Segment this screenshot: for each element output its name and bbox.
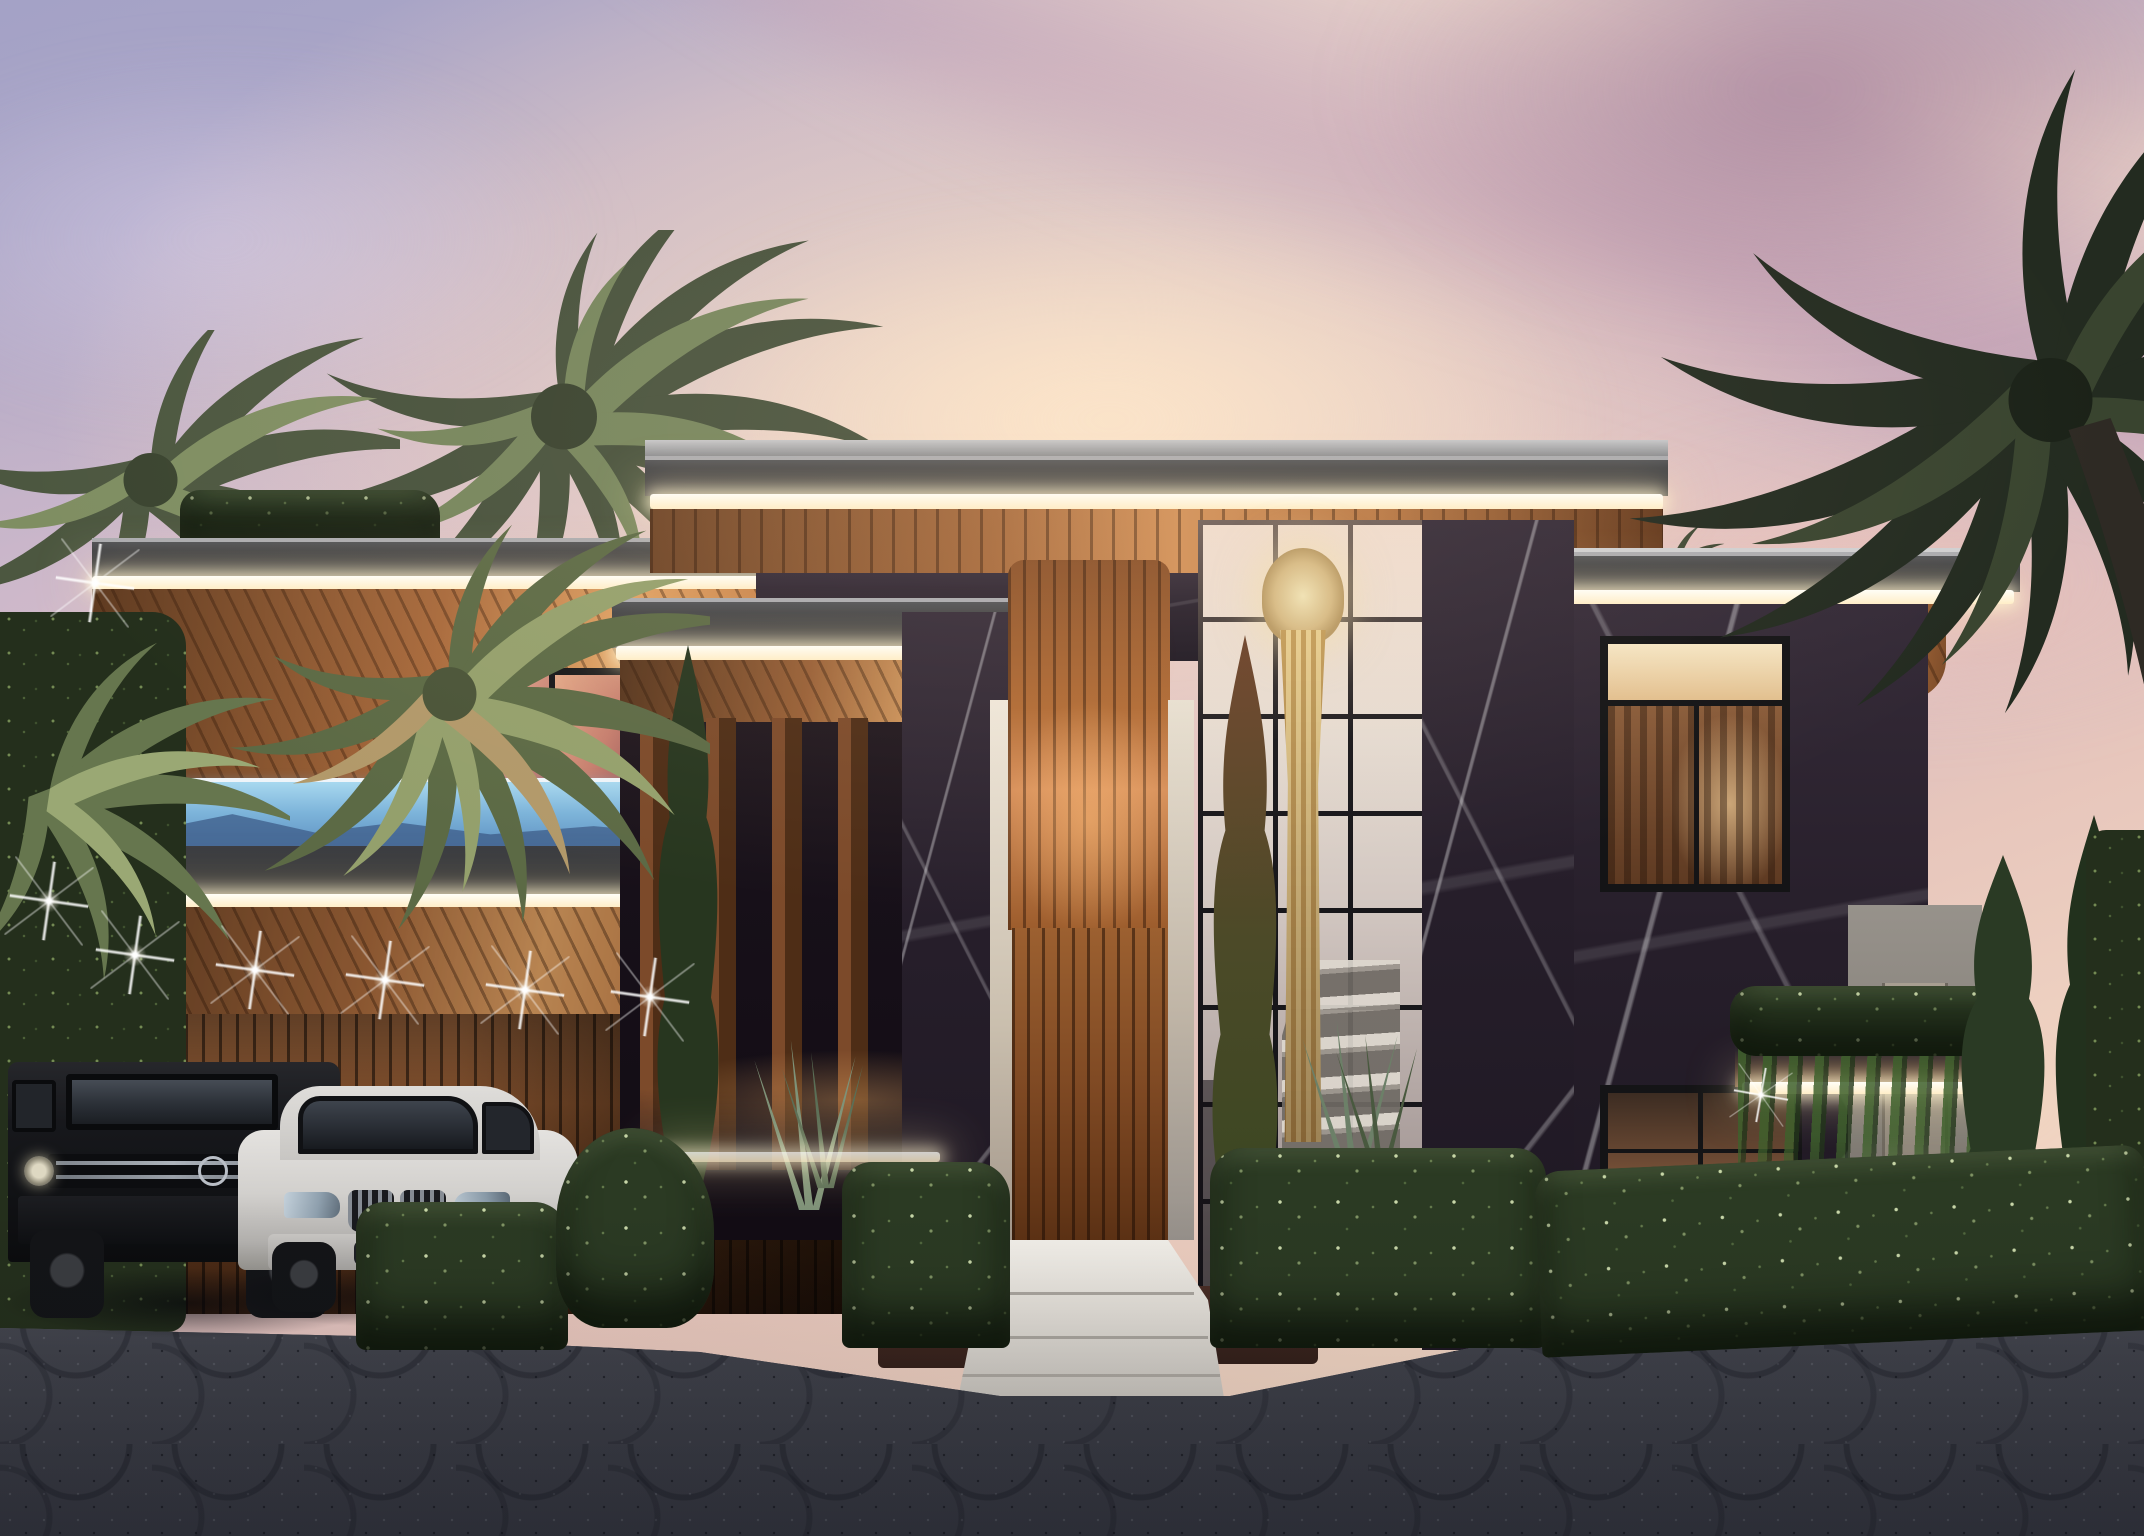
palm-tree-right-large (1600, 40, 2144, 1060)
bush-round-left (556, 1128, 714, 1328)
door-sidelight-right (1168, 700, 1194, 1240)
hedge-left (356, 1202, 568, 1350)
entrance-door (1012, 928, 1168, 1242)
palm-tree-left-edge (0, 620, 290, 1020)
hedge-entrance-left (842, 1162, 1010, 1348)
main-roof-led-strip (650, 494, 1663, 509)
main-roof-fascia (645, 456, 1668, 496)
chandelier-dome (1262, 548, 1344, 644)
garden-led-strip (660, 1152, 940, 1162)
hedge-right (1534, 1144, 2144, 1357)
hedge-entrance-right (1210, 1148, 1546, 1348)
villa-dusk-scene (0, 0, 2144, 1536)
entrance-light-wash (1008, 700, 1170, 940)
